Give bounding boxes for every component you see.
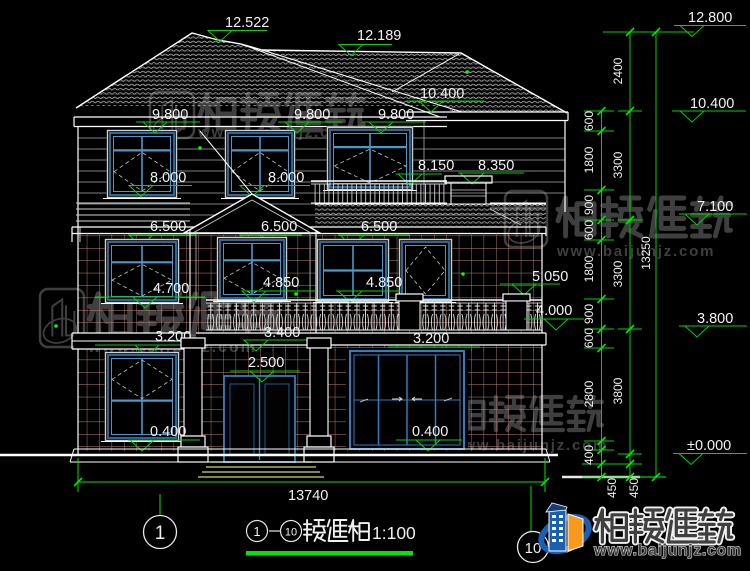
svg-text:1: 1 xyxy=(253,524,260,539)
svg-text:4.000: 4.000 xyxy=(536,303,572,319)
svg-text:9.800: 9.800 xyxy=(378,107,414,123)
svg-text:400: 400 xyxy=(582,445,596,465)
svg-text:3800: 3800 xyxy=(611,377,625,404)
svg-text:3.800: 3.800 xyxy=(697,311,733,327)
svg-text:10: 10 xyxy=(285,527,297,539)
svg-text:13740: 13740 xyxy=(288,488,328,504)
svg-text:9.800: 9.800 xyxy=(152,107,188,123)
svg-text:4.850: 4.850 xyxy=(263,275,299,291)
svg-text:8.350: 8.350 xyxy=(478,158,514,174)
svg-text:1: 1 xyxy=(155,523,166,544)
svg-text:450: 450 xyxy=(605,478,619,498)
svg-text:6.500: 6.500 xyxy=(150,219,186,235)
svg-text:8.000: 8.000 xyxy=(268,170,304,186)
svg-text:±0.000: ±0.000 xyxy=(687,438,731,454)
svg-text:900: 900 xyxy=(582,195,596,215)
svg-text:www.baijunjz.com: www.baijunjz.com xyxy=(556,243,715,260)
svg-text:7.100: 7.100 xyxy=(697,199,733,215)
svg-text:2400: 2400 xyxy=(611,57,625,84)
svg-text:0.400: 0.400 xyxy=(150,424,186,440)
svg-text:450: 450 xyxy=(627,478,641,498)
svg-text:6.500: 6.500 xyxy=(361,219,397,235)
svg-text:13250: 13250 xyxy=(639,236,653,270)
svg-text:10.400: 10.400 xyxy=(420,86,464,102)
svg-text:9.800: 9.800 xyxy=(294,107,330,123)
svg-text:2.500: 2.500 xyxy=(248,355,284,371)
svg-text:600: 600 xyxy=(582,328,596,348)
svg-text:8.000: 8.000 xyxy=(150,170,186,186)
svg-text:3.200: 3.200 xyxy=(413,331,449,347)
svg-text:600: 600 xyxy=(582,220,596,240)
svg-text:6.500: 6.500 xyxy=(261,219,297,235)
svg-text:4.850: 4.850 xyxy=(366,275,402,291)
svg-text:0.400: 0.400 xyxy=(412,424,448,440)
svg-text:5.050: 5.050 xyxy=(532,269,568,285)
svg-text:1800: 1800 xyxy=(582,255,596,282)
svg-text:600: 600 xyxy=(582,111,596,131)
svg-text:1:100: 1:100 xyxy=(372,523,416,543)
svg-text:900: 900 xyxy=(582,304,596,324)
svg-text:4.700: 4.700 xyxy=(153,281,189,297)
svg-text:8.150: 8.150 xyxy=(418,158,454,174)
svg-text:3300: 3300 xyxy=(611,260,625,287)
svg-text:10.400: 10.400 xyxy=(690,96,734,112)
svg-text:3300: 3300 xyxy=(611,151,625,178)
svg-text:www.baijunjz.com: www.baijunjz.com xyxy=(593,542,742,559)
svg-text:1800: 1800 xyxy=(582,146,596,173)
svg-text:12.522: 12.522 xyxy=(225,15,269,31)
svg-text:12.189: 12.189 xyxy=(357,28,401,44)
svg-text:3.400: 3.400 xyxy=(264,325,300,341)
svg-text:2800: 2800 xyxy=(582,380,596,407)
svg-text:12.800: 12.800 xyxy=(688,10,732,26)
